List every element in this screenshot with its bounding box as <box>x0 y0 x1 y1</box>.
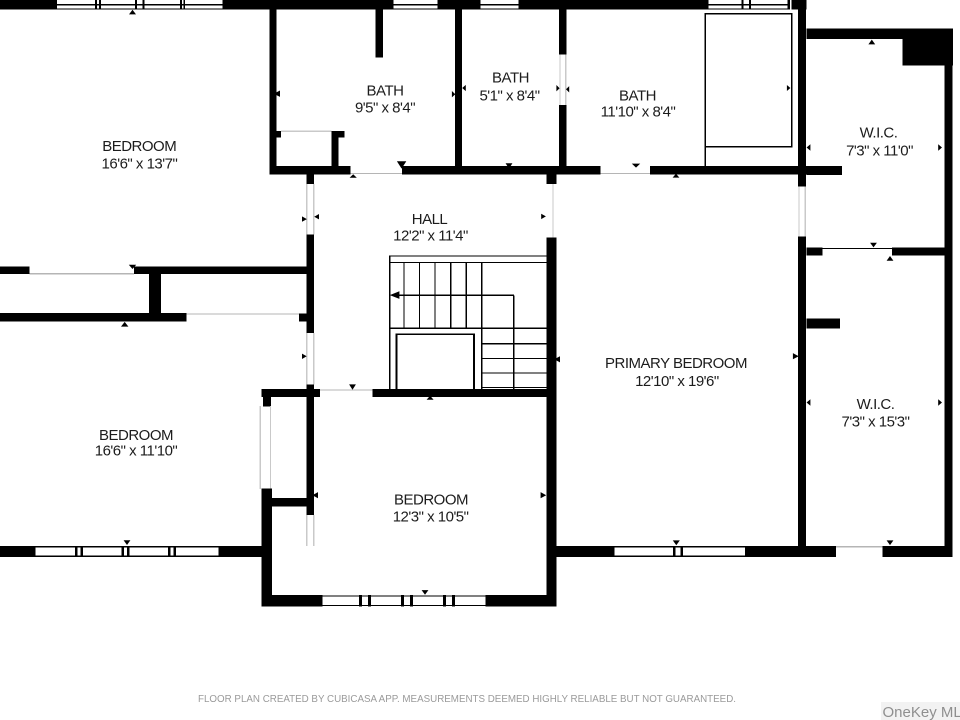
svg-text:5'1" x 8'4": 5'1" x 8'4" <box>479 88 539 105</box>
svg-text:BATH: BATH <box>492 70 529 87</box>
svg-text:BEDROOM: BEDROOM <box>99 427 173 444</box>
svg-text:BATH: BATH <box>367 83 404 100</box>
svg-text:12'2" x 11'4": 12'2" x 11'4" <box>393 228 468 245</box>
svg-text:OneKey ML: OneKey ML <box>883 704 960 720</box>
svg-text:7'3" x 11'0": 7'3" x 11'0" <box>846 143 913 160</box>
svg-text:12'10" x 19'6": 12'10" x 19'6" <box>635 373 719 390</box>
svg-text:PRIMARY BEDROOM: PRIMARY BEDROOM <box>605 355 747 372</box>
svg-text:16'6" x 11'10": 16'6" x 11'10" <box>95 443 178 460</box>
svg-text:BEDROOM: BEDROOM <box>394 491 468 508</box>
svg-text:9'5" x 8'4": 9'5" x 8'4" <box>355 100 415 117</box>
svg-text:BATH: BATH <box>619 88 656 105</box>
svg-text:7'3" x 15'3": 7'3" x 15'3" <box>842 414 910 431</box>
svg-text:W.I.C.: W.I.C. <box>857 396 895 413</box>
svg-text:HALL: HALL <box>412 211 448 228</box>
svg-text:W.I.C.: W.I.C. <box>860 125 898 142</box>
svg-text:16'6" x 13'7": 16'6" x 13'7" <box>102 156 178 173</box>
svg-text:11'10" x 8'4": 11'10" x 8'4" <box>601 104 676 121</box>
svg-text:BEDROOM: BEDROOM <box>102 138 176 155</box>
svg-text:FLOOR PLAN CREATED BY CUBICASA: FLOOR PLAN CREATED BY CUBICASA APP. MEAS… <box>198 694 736 705</box>
svg-text:12'3" x 10'5": 12'3" x 10'5" <box>393 508 469 525</box>
